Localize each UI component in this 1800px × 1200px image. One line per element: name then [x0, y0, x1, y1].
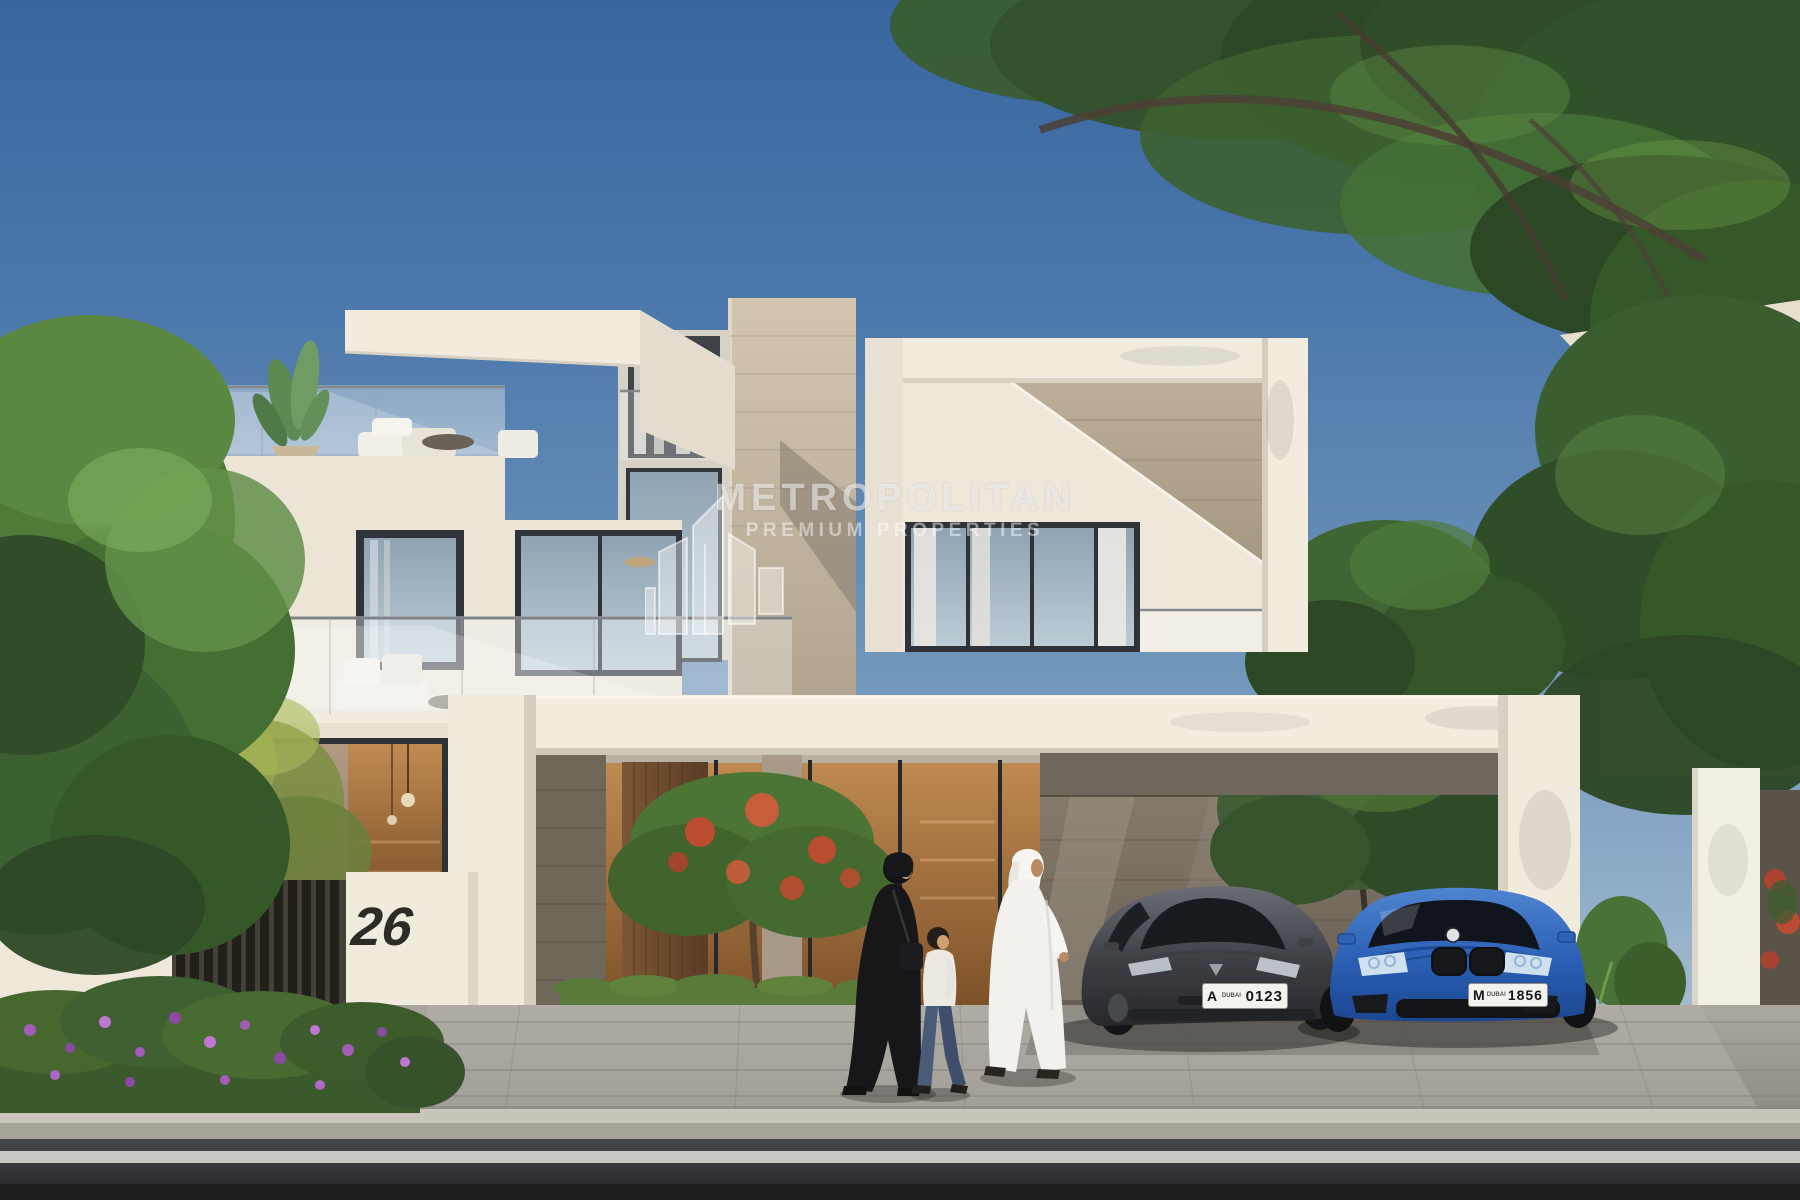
terrace-table — [422, 434, 474, 450]
sedan-license-plate: A DUBAI 0123 — [1202, 983, 1288, 1009]
scene-canvas — [0, 0, 1800, 1200]
plate-letter: M — [1473, 987, 1485, 1003]
villa-render-scene: METROPOLITAN PREMIUM PROPERTIES 26 A DUB… — [0, 0, 1800, 1200]
plate-city: DUBAI — [1222, 993, 1241, 999]
plate-city: DUBAI — [1487, 992, 1506, 998]
stone-clad-wall — [536, 753, 606, 1010]
bmw-roundel-icon — [1446, 928, 1460, 942]
plate-number: 1856 — [1508, 987, 1543, 1003]
house-number: 26 — [349, 896, 416, 958]
road — [0, 1139, 1800, 1200]
road-lane-line — [0, 1151, 1800, 1163]
curtained-window — [905, 522, 1140, 652]
coupe-license-plate: M DUBAI 1856 — [1468, 983, 1548, 1007]
plate-number: 0123 — [1246, 988, 1283, 1005]
right-wing — [865, 338, 1308, 652]
entrance — [536, 753, 1040, 1010]
right-wing-glass-railing — [1140, 608, 1262, 652]
plate-letter: A — [1207, 988, 1217, 1004]
